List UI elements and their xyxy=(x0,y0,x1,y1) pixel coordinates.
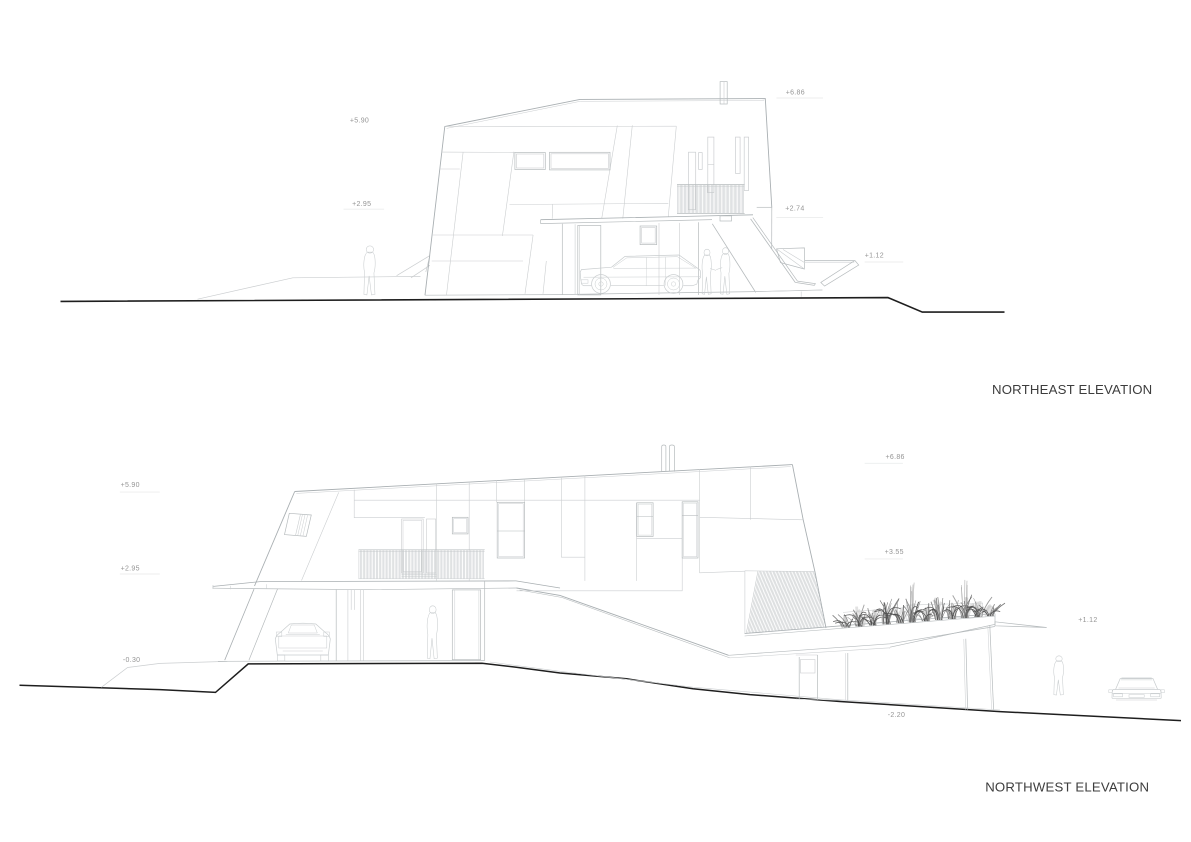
svg-text:+6.86: +6.86 xyxy=(886,454,905,461)
svg-text:-0.30: -0.30 xyxy=(123,657,140,664)
svg-text:+5.90: +5.90 xyxy=(350,117,369,124)
svg-text:NORTHWEST ELEVATION: NORTHWEST ELEVATION xyxy=(985,780,1149,795)
svg-text:+5.90: +5.90 xyxy=(121,482,140,489)
svg-text:-2.20: -2.20 xyxy=(888,712,905,719)
svg-text:+6.86: +6.86 xyxy=(786,89,805,96)
svg-text:+1.12: +1.12 xyxy=(1078,617,1097,624)
svg-text:+2.95: +2.95 xyxy=(352,201,371,208)
svg-text:+3.55: +3.55 xyxy=(885,549,904,556)
svg-text:+2.74: +2.74 xyxy=(785,206,804,213)
svg-text:+2.95: +2.95 xyxy=(121,566,140,573)
svg-text:NORTHEAST ELEVATION: NORTHEAST ELEVATION xyxy=(992,382,1152,397)
svg-text:+1.12: +1.12 xyxy=(865,253,884,260)
